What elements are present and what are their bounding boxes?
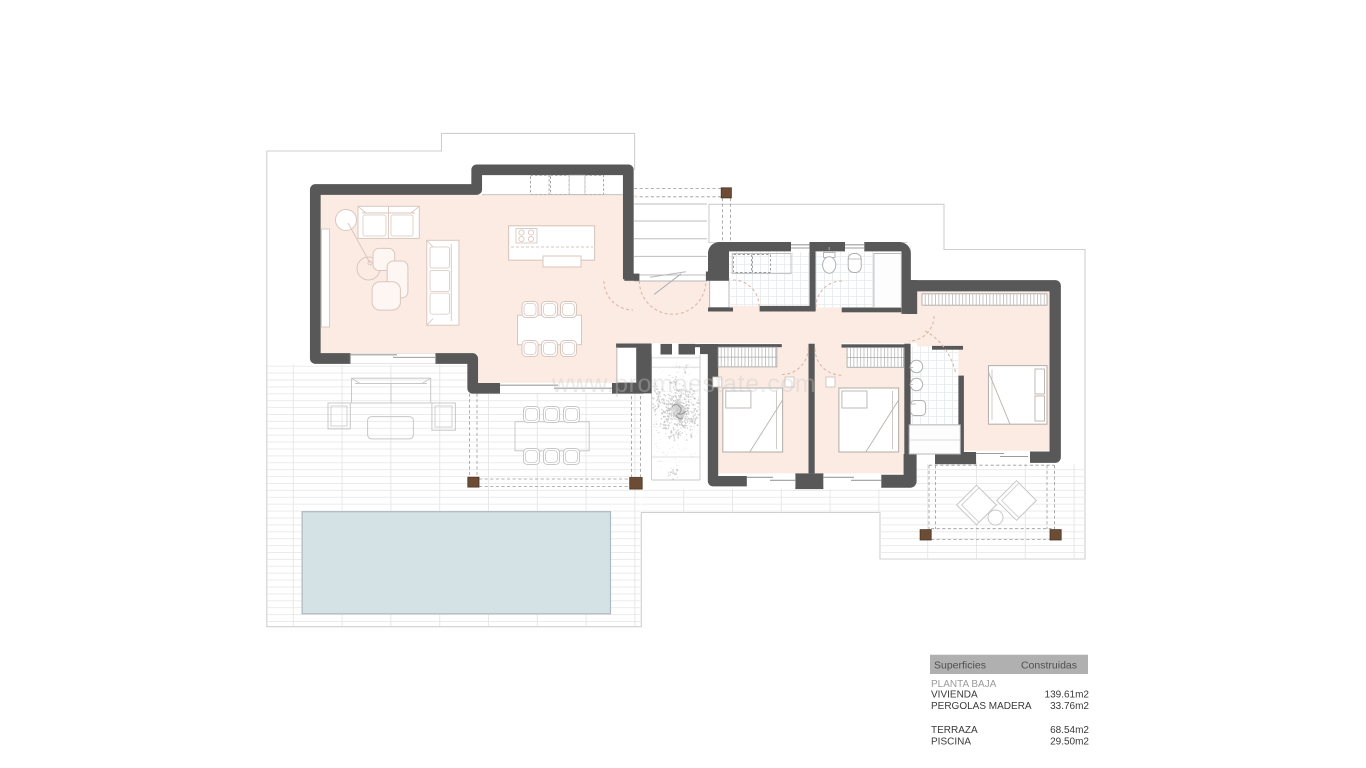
svg-text:139.61m2: 139.61m2 xyxy=(1045,690,1090,701)
svg-text:68.54m2: 68.54m2 xyxy=(1050,725,1089,736)
svg-text:29.50m2: 29.50m2 xyxy=(1050,737,1089,748)
svg-text:Superficies: Superficies xyxy=(934,660,986,672)
svg-text:33.76m2: 33.76m2 xyxy=(1050,701,1089,712)
svg-text:PERGOLAS MADERA: PERGOLAS MADERA xyxy=(931,701,1032,712)
svg-text:TERRAZA: TERRAZA xyxy=(931,725,978,736)
svg-text:PISCINA: PISCINA xyxy=(931,737,971,748)
svg-text:VIVIENDA: VIVIENDA xyxy=(931,690,978,701)
svg-text:www.promoestate.com: www.promoestate.com xyxy=(551,370,816,398)
svg-text:Construidas: Construidas xyxy=(1021,660,1077,672)
svg-text:PLANTA BAJA: PLANTA BAJA xyxy=(931,679,997,690)
